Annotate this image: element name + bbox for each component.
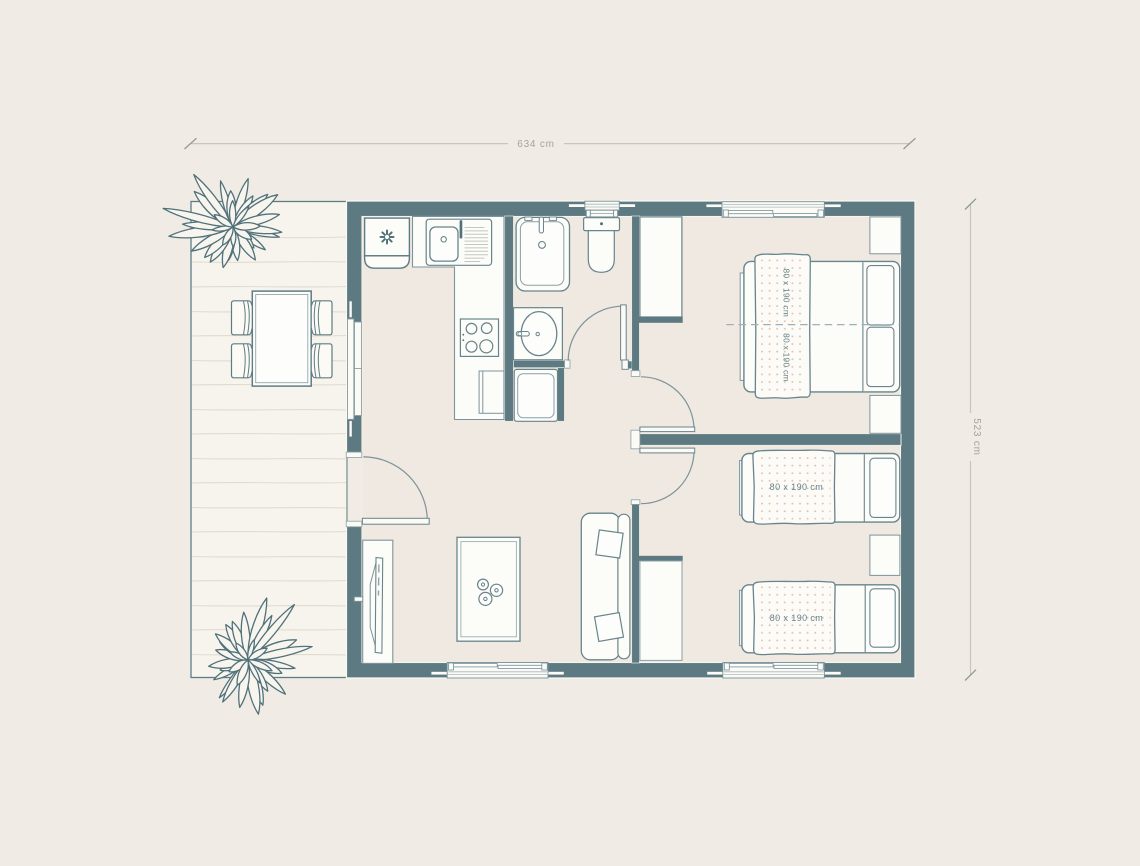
svg-text:80 x 190 cm: 80 x 190 cm	[770, 482, 823, 492]
svg-text:634 cm: 634 cm	[517, 139, 555, 150]
svg-text:80 x 190 cm: 80 x 190 cm	[781, 333, 791, 382]
svg-text:80 x 190 cm: 80 x 190 cm	[770, 613, 823, 623]
svg-text:523 cm: 523 cm	[971, 418, 982, 456]
svg-text:80 x 190 cm: 80 x 190 cm	[781, 269, 791, 318]
